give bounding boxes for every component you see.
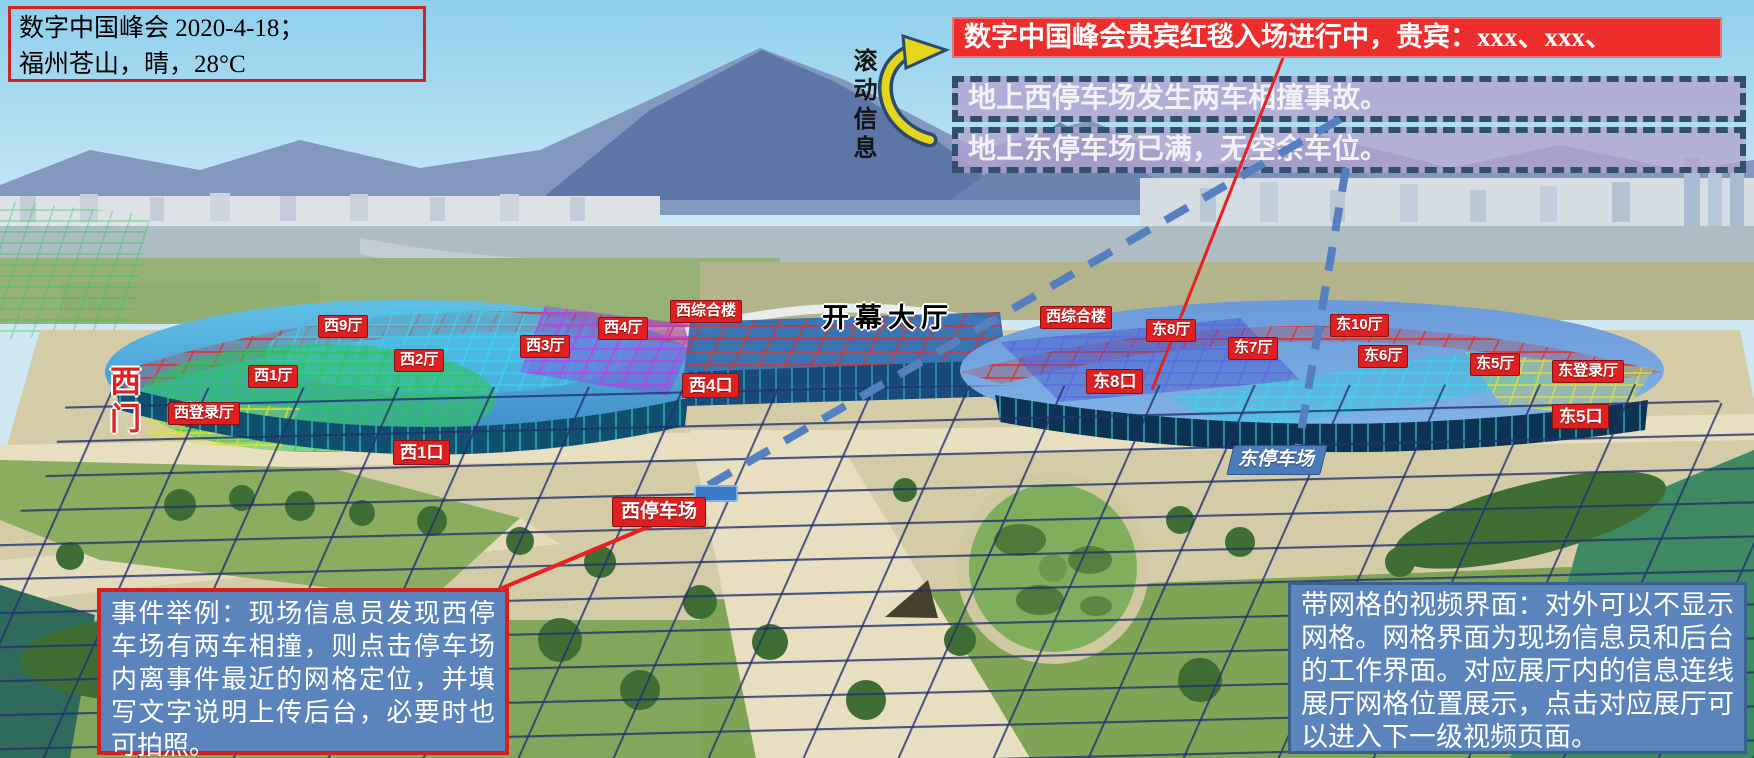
hall-label-west-1[interactable]: 西1厅 (248, 365, 298, 388)
ticker-message-east-parking: 地上东停车场已满，无空余车位。 (952, 127, 1746, 173)
event-example-note: 事件举例：现场信息员发现西停车场有两车相撞，则点击停车场内离事件最近的网格定位，… (97, 588, 509, 755)
opening-hall-label[interactable]: 开幕大厅 (822, 296, 954, 335)
location-weather-line: 福州苍山，晴，28°C (19, 47, 415, 83)
grid-interface-note: 带网格的视频界面：对外可以不显示网格。网格界面为现场信息员和后台的工作界面。对应… (1288, 582, 1747, 754)
hall-label-west-4[interactable]: 西4厅 (598, 317, 648, 340)
hall-label-east-7[interactable]: 东7厅 (1228, 337, 1278, 360)
gate-label-west-4[interactable]: 西4口 (682, 373, 739, 398)
hall-label-east-8[interactable]: 东8厅 (1146, 319, 1196, 342)
hall-label-east-10[interactable]: 东10厅 (1330, 314, 1389, 337)
hall-label-west-2[interactable]: 西2厅 (394, 349, 444, 372)
hall-label-east-5[interactable]: 东5厅 (1470, 353, 1520, 376)
gate-label-east-8[interactable]: 东8口 (1086, 369, 1143, 394)
hall-label-west-3[interactable]: 西3厅 (520, 335, 570, 358)
hall-label-west-complex-east-side[interactable]: 西综合楼 (1040, 306, 1112, 329)
gate-label-east-5[interactable]: 东5口 (1552, 404, 1609, 429)
east-parking-label[interactable]: 东停车场 (1226, 445, 1327, 475)
scrolling-info-label: 滚动信息 (845, 48, 880, 164)
hall-label-west-9[interactable]: 西9厅 (318, 315, 368, 338)
west-gate-label: 西门 (100, 365, 145, 439)
hall-label-east-login[interactable]: 东登录厅 (1552, 360, 1624, 383)
summit-date-line: 数字中国峰会 2020-4-18； (19, 11, 415, 47)
monitoring-screen: 数字中国峰会 2020-4-18； 福州苍山，晴，28°C 滚动信息 数字中国峰… (0, 0, 1754, 758)
hall-label-west-login[interactable]: 西登录厅 (168, 402, 240, 425)
ticker-headline: 数字中国峰会贵宾红毯入场进行中，贵宾：xxx、xxx、 (952, 17, 1722, 58)
hall-label-east-6[interactable]: 东6厅 (1358, 345, 1408, 368)
gate-label-west-1[interactable]: 西1口 (393, 440, 450, 465)
hall-label-west-complex[interactable]: 西综合楼 (670, 300, 742, 323)
west-parking-label[interactable]: 西停车场 (612, 497, 706, 527)
ticker-message-west-parking: 地上西停车场发生两车相撞事故。 (952, 76, 1746, 122)
datetime-weather-box: 数字中国峰会 2020-4-18； 福州苍山，晴，28°C (8, 6, 426, 82)
